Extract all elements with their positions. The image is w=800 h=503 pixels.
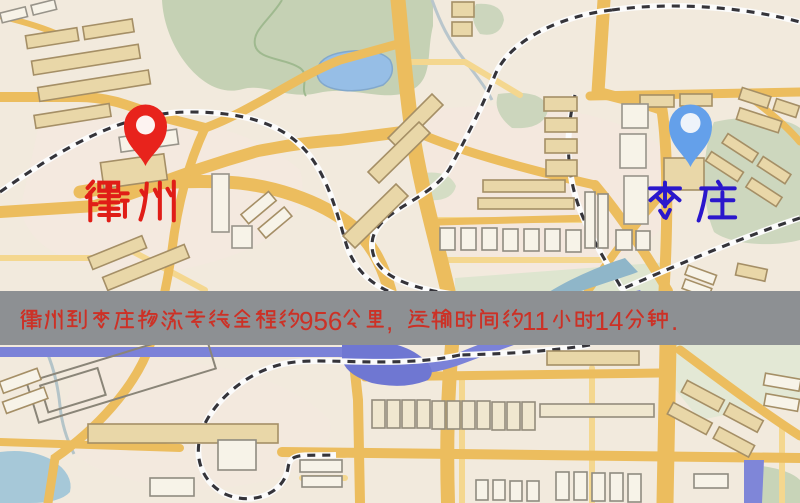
svg-text:,: , (386, 306, 393, 336)
svg-text:14: 14 (595, 306, 624, 336)
svg-text:956: 956 (299, 306, 342, 336)
svg-text:.: . (671, 306, 678, 336)
svg-text:11: 11 (522, 306, 549, 336)
